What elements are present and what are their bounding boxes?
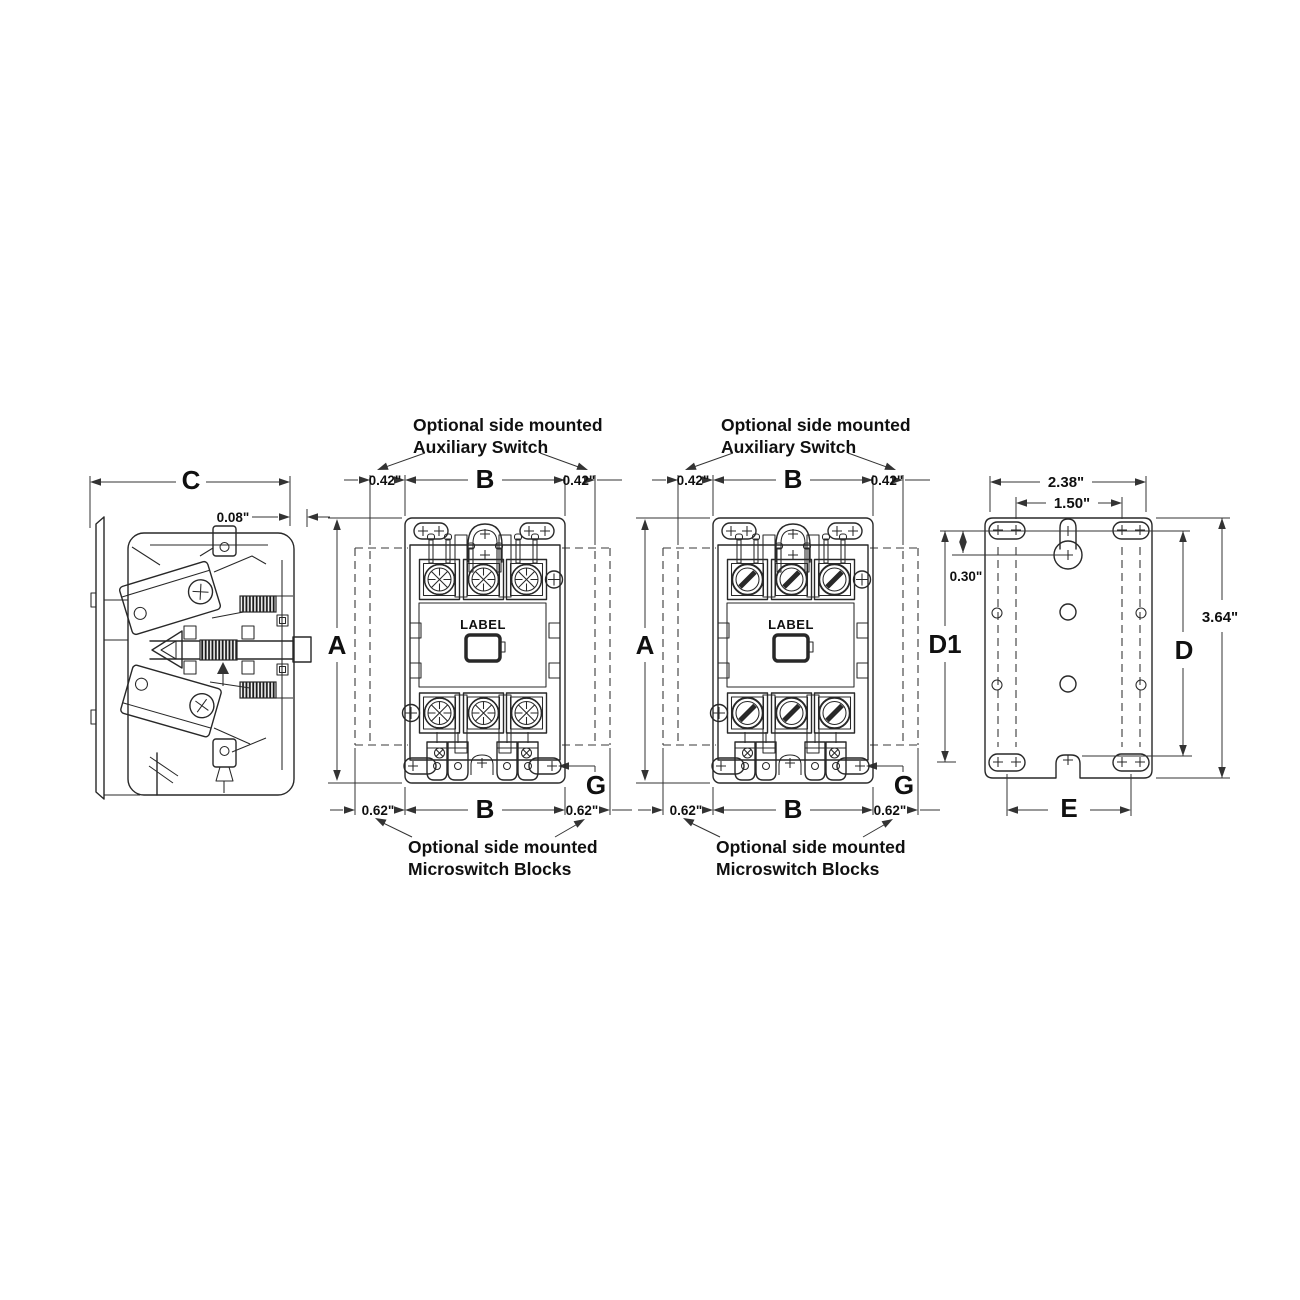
dim-label-depth-c: C <box>182 465 201 495</box>
front-view-1: Optional side mounted Auxiliary Switch 0… <box>328 415 632 879</box>
side-lower-microswitch <box>120 664 223 738</box>
dim-label-height: A <box>636 630 655 660</box>
dim-label-width-top: B <box>476 464 495 494</box>
dim-label-height: A <box>328 630 347 660</box>
dim-label-width-bottom: B <box>476 794 495 824</box>
dim-label-keyhole-offset: 0.30" <box>950 569 983 584</box>
note-microswitch-line1: Optional side mounted <box>716 837 906 857</box>
mounting-plate-view: 2.38" 1.50" 0.30" D1 D 3.64" E <box>928 474 1238 823</box>
dim-label-d1: D1 <box>928 629 961 659</box>
dim-label-micro-right: 0.62" <box>874 803 907 818</box>
terminal-screw <box>512 565 542 595</box>
front-view-2-body <box>711 518 874 783</box>
dim-label-d: D <box>1175 635 1194 665</box>
terminal-screw <box>819 564 850 595</box>
note-microswitch-line1: Optional side mounted <box>408 837 598 857</box>
terminal-screw <box>776 698 807 729</box>
note-aux-switch-line2: Auxiliary Switch <box>413 437 548 457</box>
dim-label-aux-right: 0.42" <box>871 473 904 488</box>
dim-label-e: E <box>1060 793 1077 823</box>
note-aux-switch-line1: Optional side mounted <box>413 415 603 435</box>
note-aux-switch-line1: Optional side mounted <box>721 415 911 435</box>
contactor-dimension-drawing-page: C 0.08" Optional side mounted Auxiliary … <box>0 0 1300 1300</box>
side-view: C 0.08" <box>90 465 330 799</box>
front-view-2: Optional side mounted Auxiliary Switch 0… <box>636 415 940 879</box>
side-upper-microswitch <box>119 561 222 636</box>
terminal-screw <box>732 698 763 729</box>
note-microswitch-line2: Microswitch Blocks <box>716 859 880 879</box>
terminal-screw <box>425 565 455 595</box>
dim-label-gap: 0.08" <box>217 510 250 525</box>
device-label: LABEL <box>460 617 506 632</box>
dim-label-overall-height: 3.64" <box>1202 609 1238 626</box>
terminal-screw <box>732 564 763 595</box>
dim-label-width-top: B <box>784 464 803 494</box>
dim-label-micro-left: 0.62" <box>362 803 395 818</box>
device-label: LABEL <box>768 617 814 632</box>
technical-drawing: C 0.08" Optional side mounted Auxiliary … <box>0 0 1300 1300</box>
dim-label-micro-left: 0.62" <box>670 803 703 818</box>
front-view-1-body <box>403 518 566 783</box>
note-aux-switch-line2: Auxiliary Switch <box>721 437 856 457</box>
dim-label-aux-left: 0.42" <box>369 473 402 488</box>
terminal-screw <box>469 698 499 728</box>
note-microswitch-line2: Microswitch Blocks <box>408 859 572 879</box>
terminal-screw <box>425 698 455 728</box>
terminal-screw <box>512 698 542 728</box>
dim-label-aux-right: 0.42" <box>563 473 596 488</box>
dim-label-micro-right: 0.62" <box>566 803 599 818</box>
terminal-screw <box>819 698 850 729</box>
dim-label-aux-left: 0.42" <box>677 473 710 488</box>
dim-label-terminal-g: G <box>586 770 606 800</box>
side-body-shell <box>128 533 294 795</box>
dim-label-terminal-g: G <box>894 770 914 800</box>
dim-label-slot-outer: 2.38" <box>1048 474 1084 491</box>
dim-label-width-bottom: B <box>784 794 803 824</box>
terminal-screw <box>469 565 499 595</box>
dim-label-slot-inner: 1.50" <box>1054 495 1090 512</box>
terminal-screw <box>776 564 807 595</box>
side-spring-hatch <box>200 640 237 660</box>
